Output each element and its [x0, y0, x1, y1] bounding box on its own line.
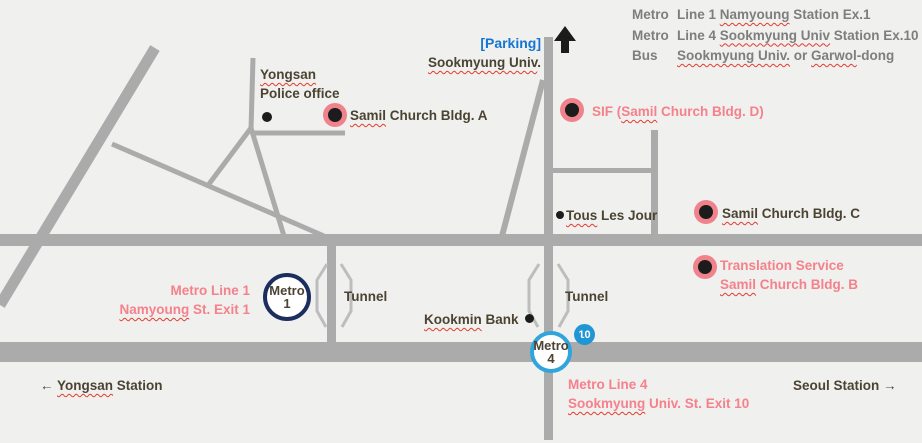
metro-1-station-circle: Metro 1 [263, 273, 311, 321]
legend-mode: Metro [632, 5, 677, 26]
station-area-map: MetroLine 1 Namyoung Station Ex.1 MetroL… [0, 0, 922, 443]
north-arrow-icon [554, 26, 576, 53]
police-road-branch-right [251, 128, 284, 236]
bldg-a-label: Samil Church Bldg. A [350, 106, 488, 125]
campus-label: [Parking] Sookmyung Univ. [428, 34, 541, 72]
main-road-vertical [544, 37, 553, 440]
main-road-upper [0, 234, 922, 246]
parking-label: [Parking] [428, 34, 541, 53]
side-road-vertical-left [327, 246, 336, 342]
metro-line1-exit-label: Metro Line 1 Namyoung St. Exit 1 [119, 281, 250, 319]
legend: MetroLine 1 Namyoung Station Ex.1 MetroL… [632, 5, 919, 67]
police-road-vertical [251, 58, 253, 130]
marker-sif [560, 98, 584, 122]
police-road-branch-left [209, 128, 251, 184]
marker-bldg-b [693, 255, 717, 279]
translation-service-label: Translation Service Samil Church Bldg. B [720, 256, 858, 294]
seoul-station-direction: Seoul Station → [793, 376, 897, 395]
marker-bldg-c [694, 200, 718, 224]
police-office-dot [262, 112, 272, 122]
legend-row-metro4: MetroLine 4 Sookmyung Univ Station Ex.10 [632, 26, 919, 47]
bldg-c-label: Samil Church Bldg. C [722, 204, 860, 223]
side-road-horizontal-right [553, 168, 655, 173]
diagonal-road-large [0, 48, 155, 305]
legend-row-metro1: MetroLine 1 Namyoung Station Ex.1 [632, 5, 919, 26]
police-office-label: Yongsan Police office [260, 65, 340, 103]
legend-mode: Metro [632, 26, 677, 47]
tunnel-label-2: Tunnel [565, 287, 608, 306]
metro-4-station-circle: Metro 4 [530, 331, 572, 373]
campus-name: Sookmyung Univ. [428, 53, 541, 72]
legend-mode: Bus [632, 46, 677, 67]
sif-label: SIF (Samil Church Bldg. D) [592, 102, 764, 121]
yongsan-station-direction: ← Yongsan Station [40, 376, 163, 395]
tunnel-label-1: Tunnel [344, 287, 387, 306]
tous-les-jour-label: Tous Les Jour [556, 206, 657, 225]
exit-10-badge: 10 [574, 324, 595, 345]
campus-diagonal-road [502, 80, 543, 236]
tous-les-jour-dot [556, 211, 564, 219]
kookmin-bank-label: Kookmin Bank [424, 310, 534, 329]
diagonal-road-thin [112, 144, 324, 236]
legend-row-bus: BusSookmyung Univ. or Garwol-dong [632, 46, 919, 67]
metro-line4-exit-label: Metro Line 4 Sookmyung Univ. St. Exit 10 [568, 375, 749, 413]
main-road-lower [0, 342, 922, 362]
marker-bldg-a [323, 103, 347, 127]
kookmin-bank-dot [525, 314, 534, 323]
